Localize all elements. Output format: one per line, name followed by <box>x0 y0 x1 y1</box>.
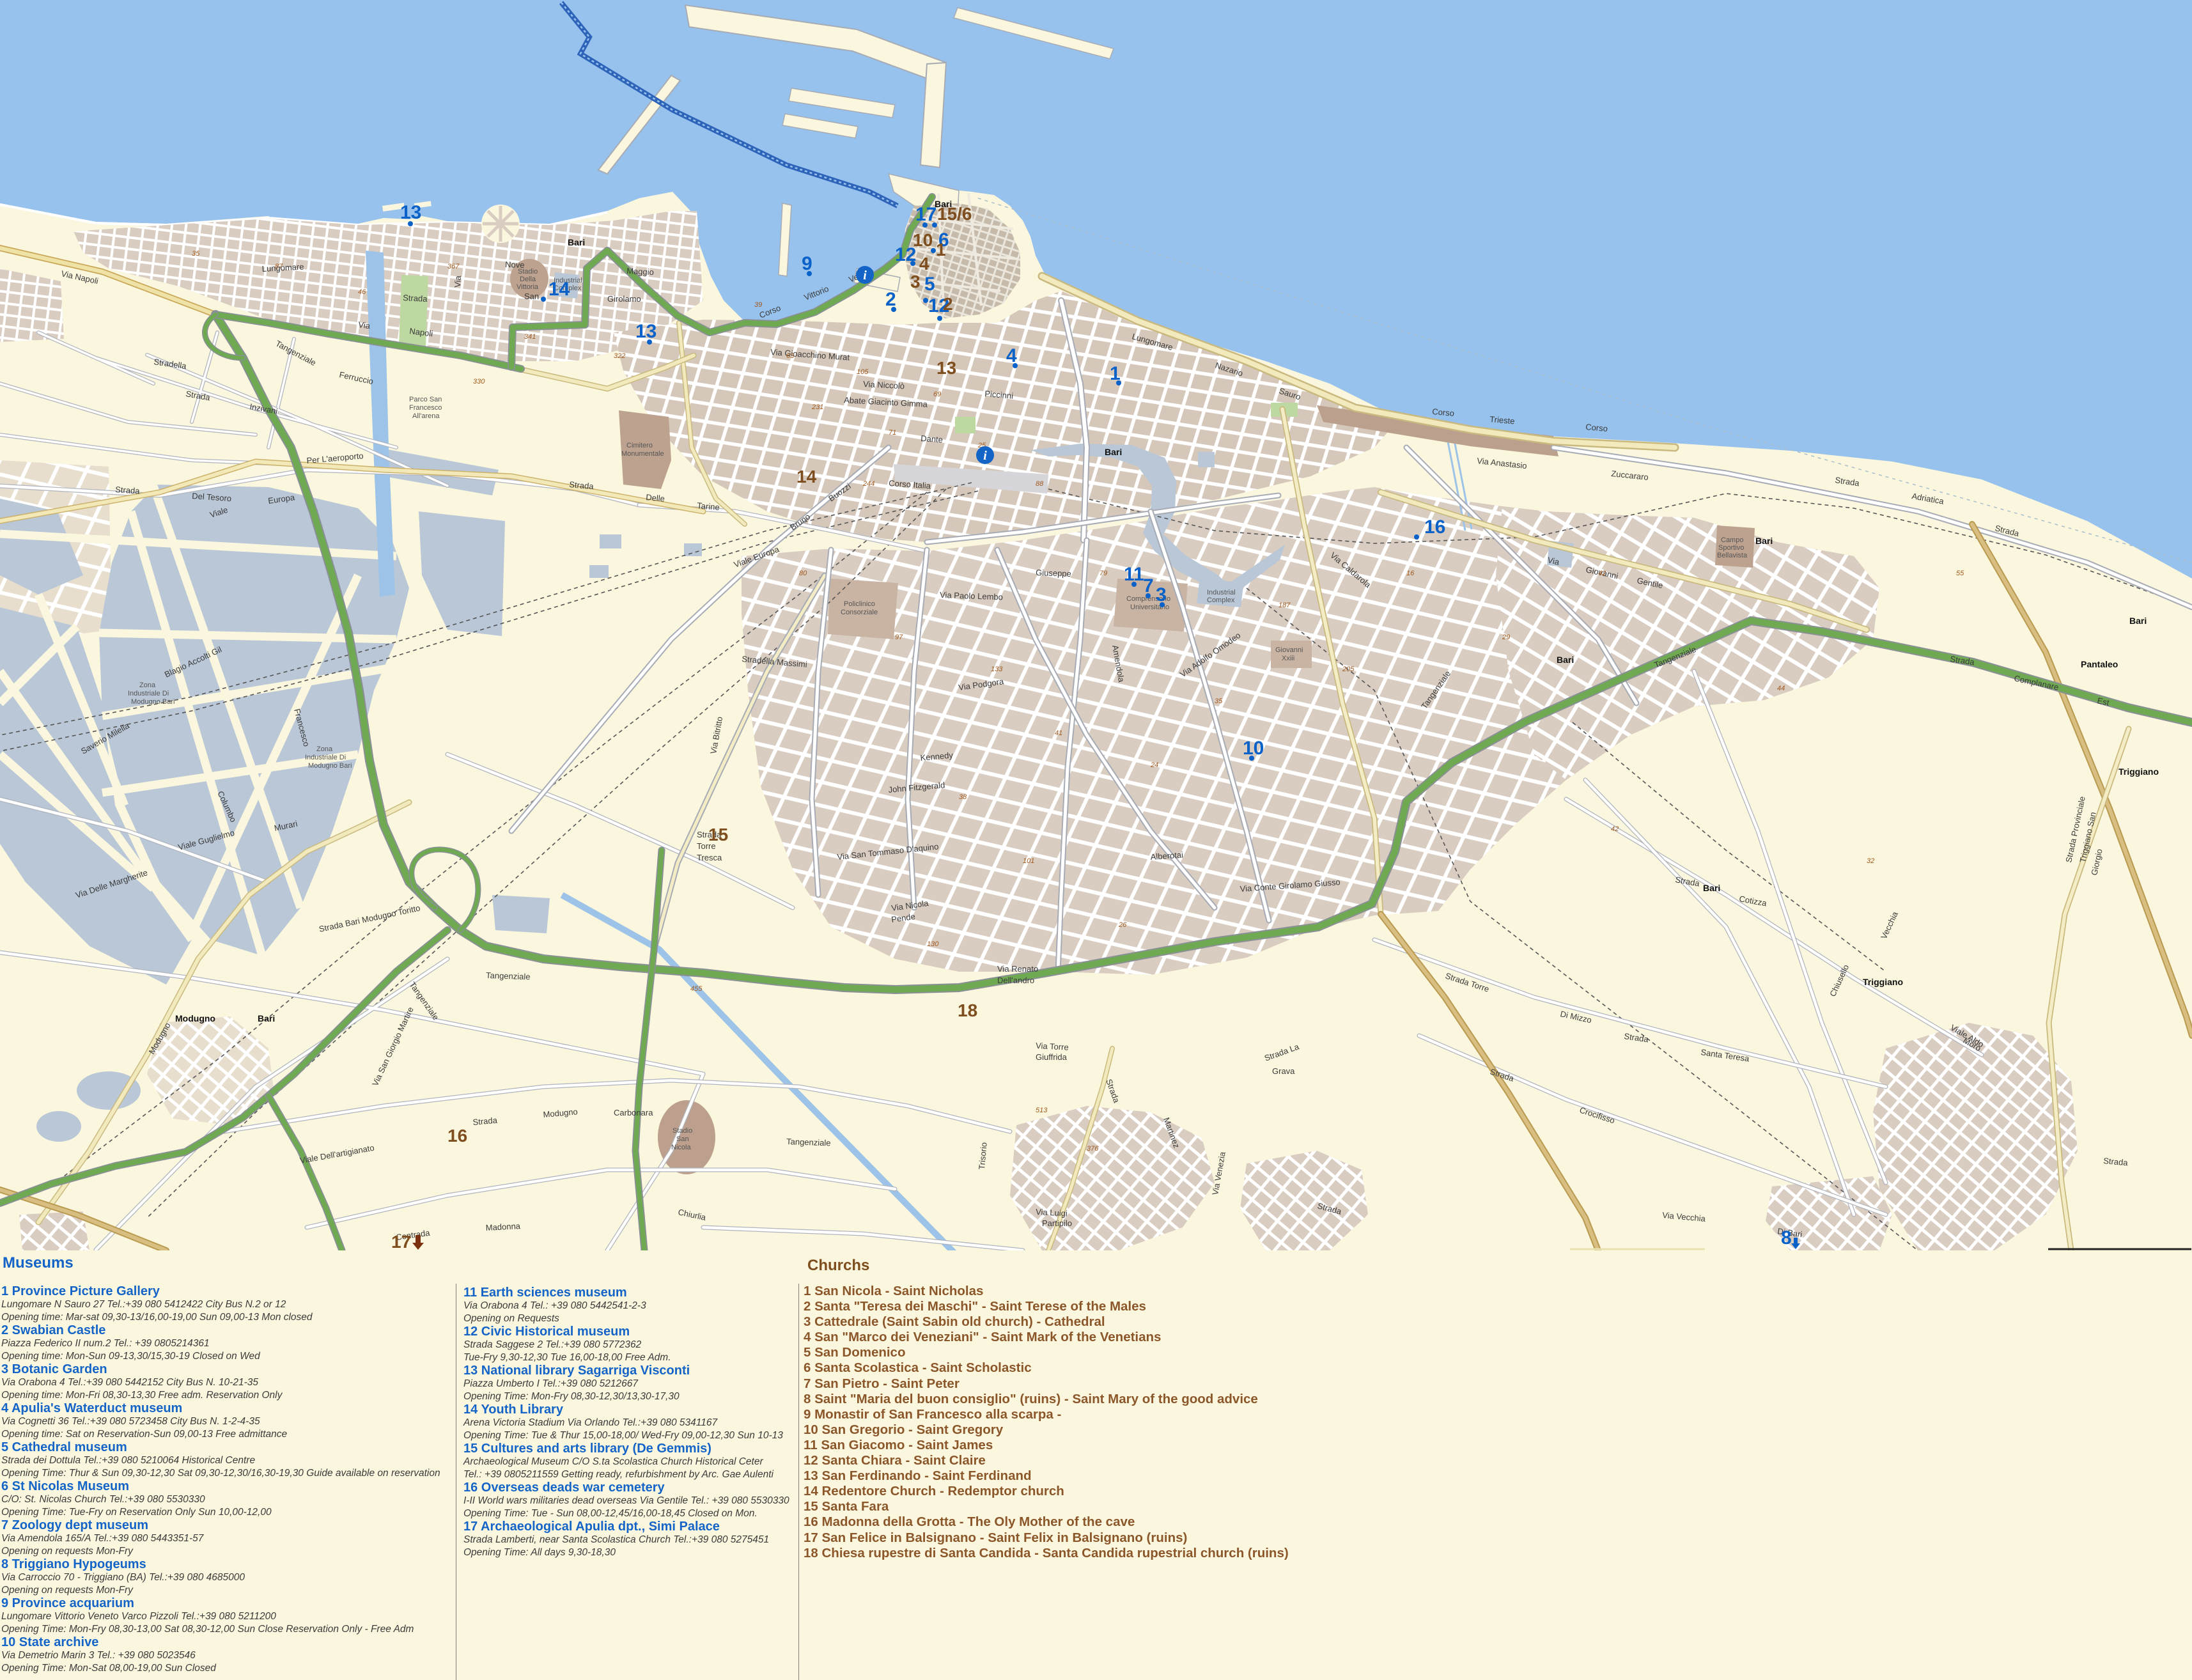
svg-text:41: 41 <box>1055 729 1062 737</box>
svg-text:35: 35 <box>1215 697 1223 705</box>
svg-text:10: 10 <box>1243 738 1264 759</box>
svg-text:All'arena: All'arena <box>412 412 440 420</box>
svg-text:63: 63 <box>786 352 795 360</box>
svg-text:i: i <box>983 449 987 463</box>
svg-text:39: 39 <box>754 301 762 309</box>
svg-text:205: 205 <box>1342 665 1355 673</box>
svg-text:341: 341 <box>524 333 536 341</box>
svg-text:105: 105 <box>857 368 869 376</box>
svg-text:88: 88 <box>1036 480 1044 488</box>
svg-text:35: 35 <box>192 250 200 258</box>
svg-text:Delle: Delle <box>646 492 665 504</box>
svg-text:Zona: Zona <box>139 681 156 689</box>
svg-text:Bari: Bari <box>1105 447 1122 457</box>
svg-text:Complex: Complex <box>1207 596 1235 604</box>
svg-text:17: 17 <box>391 1232 411 1250</box>
svg-text:330: 330 <box>473 378 485 385</box>
svg-text:5: 5 <box>924 274 935 295</box>
svg-text:San: San <box>524 292 539 301</box>
svg-text:376: 376 <box>1087 1145 1099 1153</box>
svg-text:26: 26 <box>1118 921 1127 929</box>
svg-text:Carbonara: Carbonara <box>614 1108 653 1117</box>
svg-text:71: 71 <box>889 429 896 437</box>
svg-text:Bari: Bari <box>568 237 585 247</box>
svg-text:69: 69 <box>933 391 941 398</box>
svg-text:187: 187 <box>1279 602 1291 609</box>
svg-text:Tarine: Tarine <box>697 501 720 512</box>
svg-text:Monumentale: Monumentale <box>621 450 664 458</box>
svg-text:Industriale Di: Industriale Di <box>128 690 169 697</box>
svg-text:46: 46 <box>358 288 366 296</box>
svg-text:Zona: Zona <box>316 745 333 753</box>
svg-text:Modugno Bari: Modugno Bari <box>131 698 175 706</box>
svg-text:55: 55 <box>1956 570 1964 577</box>
svg-text:79: 79 <box>1100 570 1107 577</box>
svg-text:Bari: Bari <box>1755 536 1773 546</box>
svg-text:2: 2 <box>943 294 953 314</box>
svg-text:Tresca: Tresca <box>697 853 722 862</box>
svg-text:13: 13 <box>937 358 956 378</box>
svg-text:3: 3 <box>910 272 921 292</box>
svg-text:Girolamo: Girolamo <box>607 294 641 304</box>
svg-text:16: 16 <box>1424 517 1445 538</box>
svg-text:Tangenziale: Tangenziale <box>786 1137 831 1147</box>
svg-text:Madonna: Madonna <box>485 1221 521 1233</box>
svg-text:133: 133 <box>991 665 1003 673</box>
svg-text:14: 14 <box>797 467 817 486</box>
svg-text:Policlinico: Policlinico <box>844 600 875 608</box>
svg-text:Giovanni: Giovanni <box>1275 646 1303 654</box>
svg-text:13: 13 <box>400 202 421 223</box>
svg-text:Pantaleo: Pantaleo <box>2081 659 2118 669</box>
svg-text:87: 87 <box>275 263 283 270</box>
svg-text:14: 14 <box>548 279 570 300</box>
svg-text:Campo: Campo <box>1721 536 1743 544</box>
svg-text:13: 13 <box>635 321 657 342</box>
svg-text:Via Torre: Via Torre <box>1036 1041 1069 1052</box>
svg-text:455: 455 <box>690 985 703 993</box>
svg-text:Modugno: Modugno <box>175 1013 215 1023</box>
svg-text:Bari: Bari <box>2129 616 2147 626</box>
svg-text:24: 24 <box>1150 761 1158 769</box>
svg-text:Nicola: Nicola <box>671 1144 691 1151</box>
svg-text:Giuffrida: Giuffrida <box>1036 1052 1068 1062</box>
svg-text:San: San <box>676 1135 689 1143</box>
svg-text:1: 1 <box>936 240 946 260</box>
svg-text:Bari: Bari <box>1703 883 1720 893</box>
svg-text:Dante: Dante <box>921 433 944 444</box>
svg-text:Vittoria: Vittoria <box>517 283 539 291</box>
svg-text:9: 9 <box>802 253 812 274</box>
svg-text:513: 513 <box>1036 1107 1048 1114</box>
svg-text:101: 101 <box>1023 857 1034 865</box>
svg-text:Via: Via <box>453 275 463 288</box>
svg-text:Xxiii: Xxiii <box>1282 655 1294 662</box>
svg-text:4: 4 <box>919 254 929 274</box>
svg-text:Via: Via <box>358 320 371 331</box>
svg-text:Bellavista: Bellavista <box>1717 552 1748 559</box>
svg-text:367: 367 <box>447 263 460 270</box>
svg-text:Della: Della <box>520 276 536 283</box>
svg-text:Modugno Bari: Modugno Bari <box>308 762 352 770</box>
svg-text:Consorziale: Consorziale <box>841 609 878 616</box>
svg-text:Maggio: Maggio <box>626 266 654 277</box>
svg-text:29: 29 <box>1502 634 1510 641</box>
svg-text:32: 32 <box>1867 857 1874 865</box>
svg-text:Sportivo: Sportivo <box>1718 544 1744 552</box>
svg-text:Stadio: Stadio <box>672 1127 692 1135</box>
svg-text:17: 17 <box>915 204 937 225</box>
svg-text:44: 44 <box>1777 685 1785 692</box>
svg-text:Giuseppe: Giuseppe <box>1036 568 1071 579</box>
svg-text:Via Luigi: Via Luigi <box>1036 1207 1068 1218</box>
svg-text:130: 130 <box>927 940 939 948</box>
svg-text:Bari: Bari <box>1557 655 1574 665</box>
svg-text:8: 8 <box>1781 1227 1792 1248</box>
svg-text:97: 97 <box>895 634 903 641</box>
svg-text:18: 18 <box>958 1000 977 1020</box>
svg-text:i: i <box>863 268 867 283</box>
svg-text:15/6: 15/6 <box>937 204 972 224</box>
svg-text:Via Renato: Via Renato <box>997 964 1038 974</box>
svg-text:42: 42 <box>1598 570 1606 577</box>
svg-text:Industrial: Industrial <box>1207 589 1236 596</box>
svg-text:2: 2 <box>885 289 896 310</box>
svg-text:Cimitero: Cimitero <box>626 442 653 449</box>
svg-text:Francesco: Francesco <box>409 404 442 412</box>
svg-text:Industriale Di: Industriale Di <box>305 754 346 761</box>
svg-text:Strada: Strada <box>115 485 141 496</box>
svg-text:244: 244 <box>862 480 874 488</box>
svg-text:Corso: Corso <box>1432 407 1455 418</box>
svg-text:Partipilo: Partipilo <box>1042 1218 1072 1228</box>
svg-text:80: 80 <box>799 570 807 577</box>
svg-text:Triggiano: Triggiano <box>2118 766 2159 777</box>
svg-text:231: 231 <box>811 403 823 411</box>
svg-text:42: 42 <box>1611 825 1619 833</box>
svg-text:3: 3 <box>1156 584 1167 605</box>
svg-text:15: 15 <box>708 825 728 844</box>
svg-text:Dell'andro: Dell'andro <box>997 976 1034 985</box>
svg-text:Grava: Grava <box>1272 1066 1295 1076</box>
svg-text:Triggiano: Triggiano <box>1863 977 1903 987</box>
svg-text:Strada: Strada <box>403 293 428 304</box>
svg-text:Bari: Bari <box>258 1013 275 1023</box>
svg-text:16: 16 <box>447 1126 467 1146</box>
svg-text:Tangenziale: Tangenziale <box>486 970 531 981</box>
svg-text:10: 10 <box>913 230 933 250</box>
svg-text:Parco San: Parco San <box>409 396 442 403</box>
svg-text:16: 16 <box>1406 570 1415 577</box>
svg-text:Stadio: Stadio <box>518 268 538 276</box>
svg-text:38: 38 <box>959 793 967 801</box>
svg-text:Corso: Corso <box>1585 422 1608 433</box>
svg-text:322: 322 <box>614 352 625 360</box>
